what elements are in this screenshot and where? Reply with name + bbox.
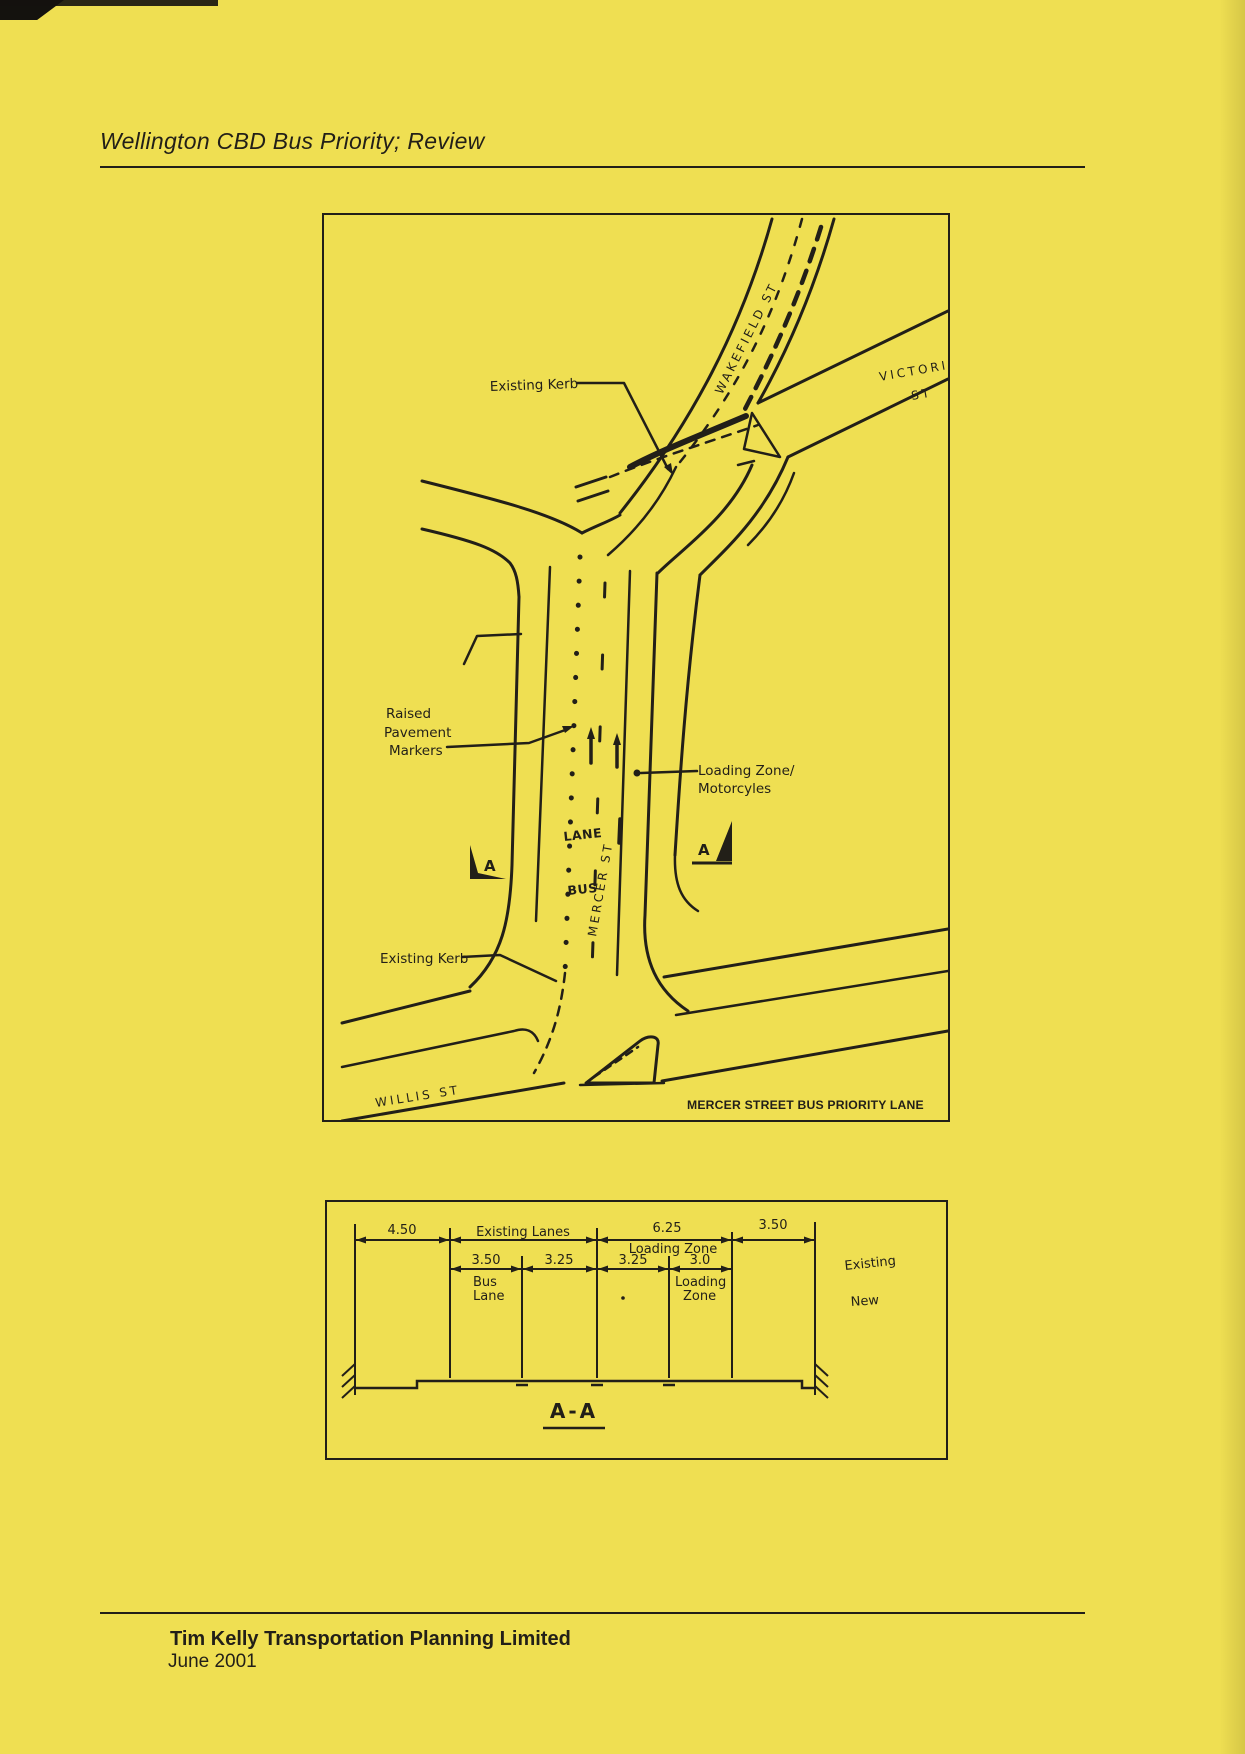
- dim-new-3: 3.0: [690, 1253, 711, 1268]
- label-new-row: New: [850, 1293, 880, 1310]
- footer-company: Tim Kelly Transportation Planning Limite…: [170, 1628, 571, 1651]
- section-title: A-A: [550, 1399, 598, 1423]
- dim-new-3-sub1: Loading: [675, 1275, 726, 1290]
- label-loading-zone: Loading Zone/: [698, 763, 795, 779]
- dim-new-0: 3.50: [472, 1253, 501, 1268]
- dim-new-0-sub2: Lane: [473, 1289, 504, 1304]
- road-network: [342, 219, 948, 1120]
- scan-artifact-top-streak: [0, 0, 218, 6]
- section-marker-left: A: [470, 845, 506, 879]
- cross-section-drawing: 4.50 Existing Lanes 6.25 Loading Zone 3.…: [327, 1202, 946, 1458]
- section-marker-right: A: [692, 821, 732, 863]
- dim-existing-0: 4.50: [388, 1223, 417, 1238]
- mercer-street-plan-drawing: A A Existing Kerb WAKEFIELD ST VICTORIA …: [324, 215, 948, 1120]
- dimension-lines: [355, 1240, 815, 1269]
- dim-existing-2: 6.25: [653, 1221, 682, 1236]
- dim-existing-1: Existing Lanes: [476, 1225, 570, 1240]
- page-header-title: Wellington CBD Bus Priority; Review: [100, 128, 485, 155]
- dim-new-3-sub2: Zone: [683, 1289, 716, 1304]
- section-figure-frame: 4.50 Existing Lanes 6.25 Loading Zone 3.…: [325, 1200, 948, 1460]
- dimension-arrowheads: [356, 1237, 814, 1273]
- label-existing-row: Existing: [844, 1254, 897, 1274]
- leader-raised-pavement-markers: [447, 729, 568, 747]
- leader-existing-kerb-bottom: [462, 955, 556, 981]
- label-existing-kerb-top: Existing Kerb: [490, 376, 579, 395]
- scan-edge-shadow: [1219, 0, 1245, 1754]
- header-rule: [100, 166, 1085, 168]
- label-raised: Raised: [386, 706, 431, 722]
- label-existing-kerb-bottom: Existing Kerb: [380, 951, 468, 967]
- section-marker-right-label: A: [698, 841, 710, 859]
- road-profile: [355, 1381, 815, 1388]
- dim-existing-3: 3.50: [759, 1218, 788, 1233]
- label-pavement: Pavement: [384, 725, 451, 741]
- dimension-verticals: [355, 1222, 815, 1395]
- map-caption: MERCER STREET BUS PRIORITY LANE: [687, 1098, 924, 1112]
- section-marker-left-label: A: [484, 857, 496, 875]
- dim-new-1: 3.25: [545, 1253, 574, 1268]
- road-marking-lane: LANE: [563, 825, 603, 844]
- scan-speck: [621, 1296, 625, 1300]
- label-markers: Markers: [389, 743, 443, 759]
- map-figure-frame: A A Existing Kerb WAKEFIELD ST VICTORIA …: [322, 213, 950, 1122]
- street-name-willis: WILLIS ST: [374, 1083, 461, 1110]
- road-marking-bus: BUS: [567, 880, 599, 898]
- dim-new-0-sub1: Bus: [473, 1275, 497, 1290]
- loading-zone-point: [634, 770, 641, 777]
- footer-rule: [100, 1612, 1085, 1614]
- label-motorcycles: Motorcyles: [698, 781, 771, 797]
- street-name-victoria-st: ST: [910, 386, 933, 403]
- dim-new-2: 3.25: [619, 1253, 648, 1268]
- street-name-victoria: VICTORIA: [878, 356, 948, 384]
- footer-date: June 2001: [168, 1651, 257, 1673]
